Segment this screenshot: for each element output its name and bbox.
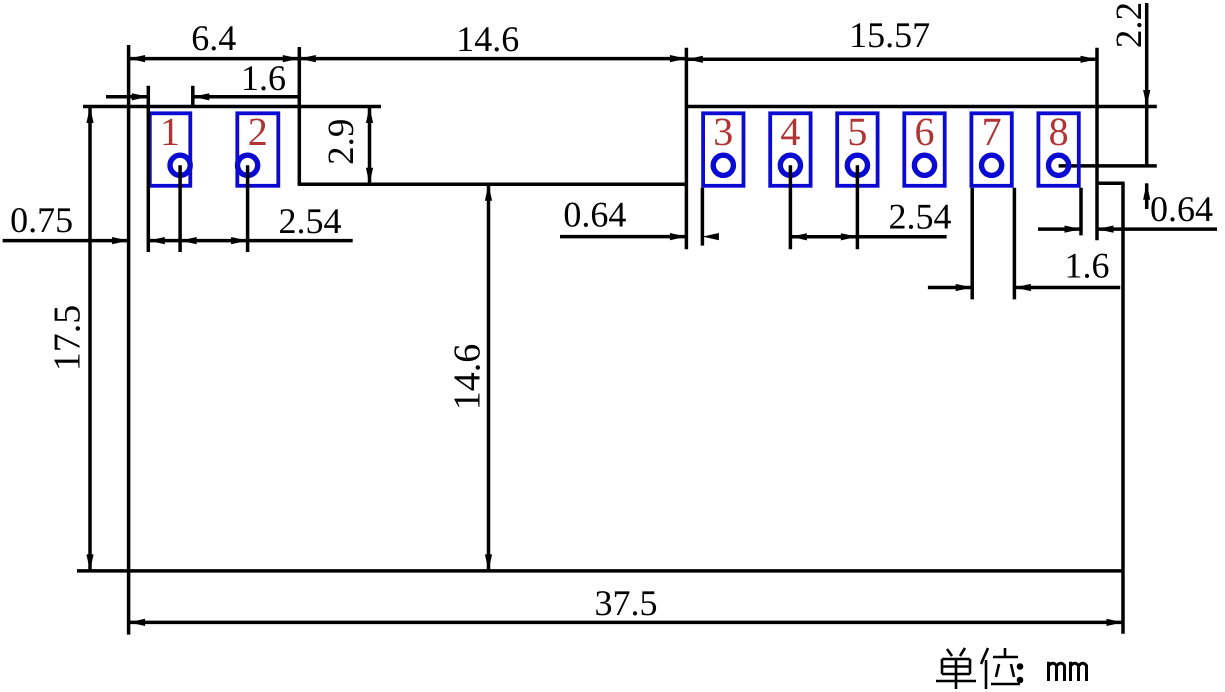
svg-text:6: 6	[915, 109, 935, 154]
svg-text:2: 2	[248, 109, 268, 154]
svg-text:0.75: 0.75	[10, 200, 73, 240]
svg-text:5: 5	[847, 109, 867, 154]
svg-text:2.54: 2.54	[279, 201, 342, 241]
svg-text:4: 4	[780, 109, 800, 154]
svg-text:7: 7	[982, 109, 1002, 154]
svg-text:8: 8	[1049, 109, 1069, 154]
svg-text:2.54: 2.54	[889, 197, 952, 237]
svg-text:1.6: 1.6	[241, 58, 286, 98]
svg-text:0.64: 0.64	[1150, 189, 1213, 229]
svg-text:1: 1	[160, 109, 180, 154]
svg-text:17.5: 17.5	[46, 305, 88, 372]
svg-text:0.64: 0.64	[563, 195, 626, 235]
svg-text:1.6: 1.6	[1065, 245, 1110, 285]
svg-text:15.57: 15.57	[849, 15, 930, 55]
svg-text:2.9: 2.9	[321, 119, 362, 165]
svg-text:3: 3	[713, 109, 733, 154]
svg-text:14.6: 14.6	[446, 344, 488, 411]
svg-text:14.6: 14.6	[456, 19, 519, 59]
svg-text:2.2: 2.2	[1109, 2, 1150, 48]
svg-text:6.4: 6.4	[191, 18, 236, 58]
svg-text:37.5: 37.5	[595, 583, 658, 623]
